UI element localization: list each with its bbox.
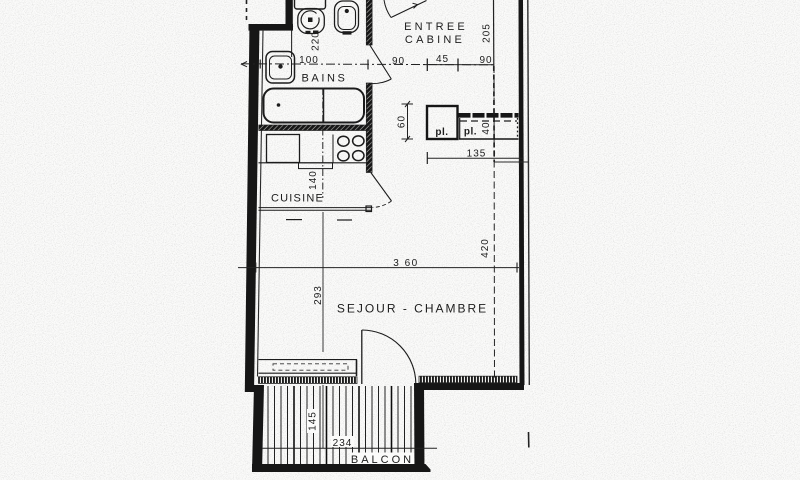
svg-text:3 60: 3 60: [393, 258, 418, 269]
svg-text:205: 205: [482, 23, 493, 43]
svg-text:SEJOUR - CHAMBRE: SEJOUR - CHAMBRE: [337, 302, 488, 316]
svg-text:135: 135: [467, 149, 487, 160]
svg-text:40: 40: [481, 121, 492, 134]
svg-text:140: 140: [308, 170, 319, 190]
svg-text:100: 100: [299, 55, 319, 66]
svg-text:CABINE: CABINE: [405, 34, 465, 46]
svg-text:BALCON: BALCON: [351, 454, 414, 466]
svg-text:CUISINE: CUISINE: [271, 193, 324, 205]
svg-text:90: 90: [392, 56, 405, 67]
svg-text:BAINS: BAINS: [301, 73, 347, 85]
svg-text:ENTREE: ENTREE: [404, 21, 468, 33]
svg-text:60: 60: [397, 115, 408, 128]
svg-text:420: 420: [480, 238, 491, 258]
svg-text:220: 220: [311, 31, 322, 51]
svg-text:pl.: pl.: [435, 127, 448, 138]
svg-text:145: 145: [308, 411, 319, 431]
svg-text:45: 45: [436, 54, 449, 65]
svg-text:90: 90: [479, 55, 492, 66]
svg-text:293: 293: [313, 285, 324, 305]
svg-text:234: 234: [333, 438, 353, 449]
svg-text:pl.: pl.: [464, 127, 477, 138]
